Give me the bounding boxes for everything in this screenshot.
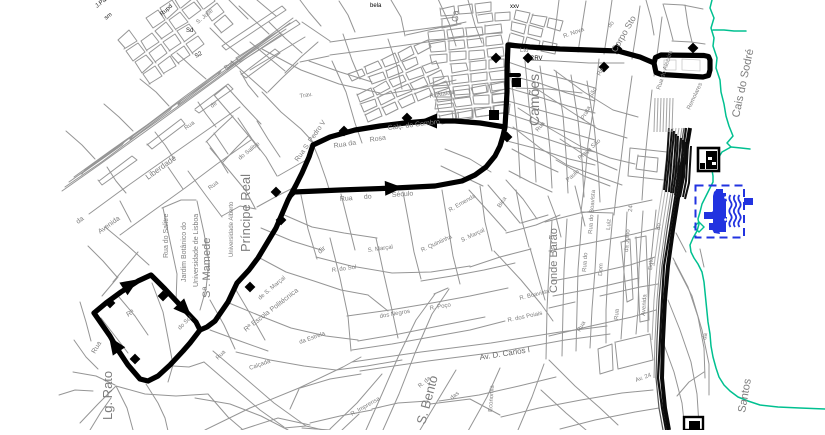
svg-text:xxv: xxv — [510, 4, 519, 10]
svg-text:24: 24 — [628, 204, 634, 212]
svg-text:bela: bela — [370, 3, 382, 9]
svg-text:Lg. Rato: Lg. Rato — [100, 371, 115, 420]
svg-text:Século: Século — [392, 191, 414, 199]
svg-text:Conde Barão: Conde Barão — [548, 228, 560, 293]
svg-text:Bqto: Bqto — [648, 257, 655, 270]
svg-text:do: do — [364, 193, 372, 201]
svg-text:Sª. Mamede: Sª. Mamede — [201, 238, 213, 298]
svg-text:Universidade Alberto: Universidade Alberto — [229, 201, 235, 257]
svg-text:do: do — [656, 222, 662, 230]
svg-text:CRV: CRV — [530, 56, 543, 62]
svg-text:Rua: Rua — [340, 195, 353, 203]
svg-text:Sd: Sd — [186, 28, 193, 34]
svg-text:Rua do Salitre: Rua do Salitre — [163, 214, 170, 258]
svg-text:Lto: Lto — [520, 48, 529, 54]
svg-text:Ca: Ca — [450, 10, 460, 22]
svg-text:Dom: Dom — [598, 263, 605, 276]
svg-text:Jardim Botânico do: Jardim Botânico do — [181, 222, 188, 282]
svg-text:Rua: Rua — [614, 308, 621, 320]
svg-text:Luiz: Luiz — [606, 219, 613, 230]
svg-text:Príncipe Real: Príncipe Real — [238, 174, 253, 252]
svg-text:Camões: Camões — [526, 74, 542, 126]
svg-text:Universidade de Lisboa: Universidade de Lisboa — [193, 214, 200, 287]
